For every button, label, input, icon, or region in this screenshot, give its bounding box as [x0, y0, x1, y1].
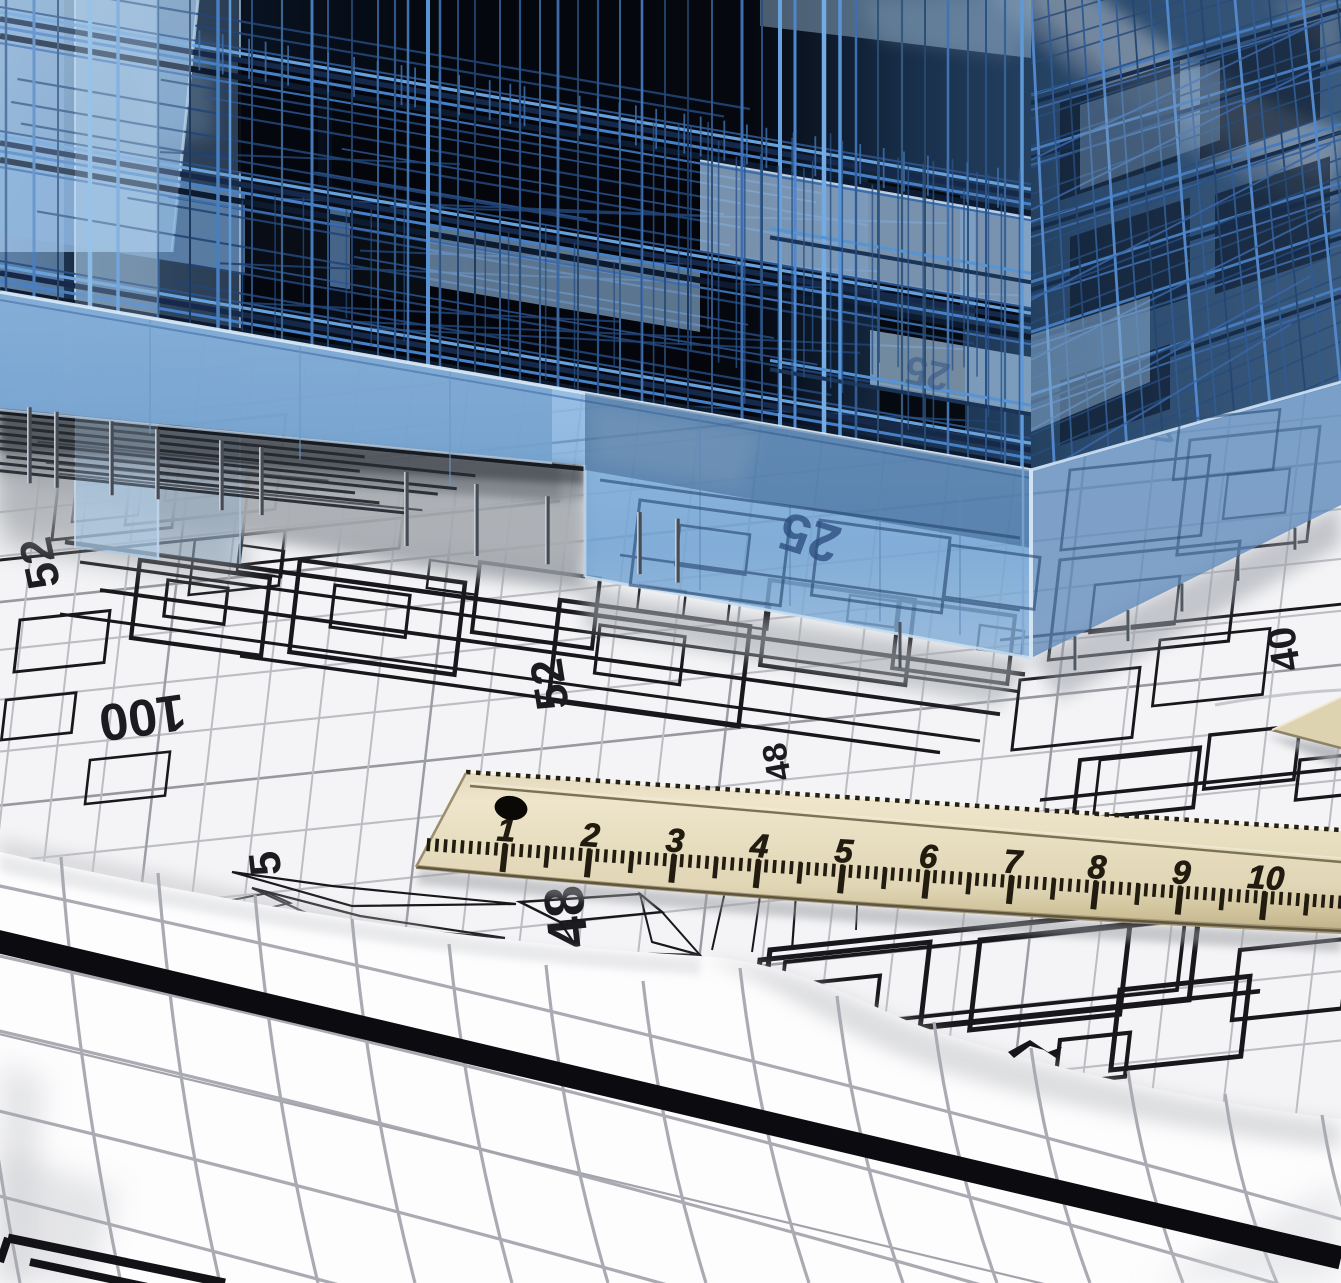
svg-text:40: 40 — [1259, 624, 1309, 675]
svg-text:2: 2 — [579, 816, 602, 854]
svg-text:52: 52 — [520, 655, 579, 714]
svg-text:10: 10 — [1246, 858, 1286, 898]
svg-text:4: 4 — [748, 826, 770, 864]
svg-text:48: 48 — [755, 740, 799, 784]
svg-text:9: 9 — [1171, 853, 1193, 891]
svg-text:3: 3 — [665, 821, 686, 859]
svg-text:25: 25 — [901, 347, 954, 399]
svg-text:100: 100 — [95, 682, 189, 752]
svg-text:8: 8 — [1087, 848, 1109, 886]
svg-text:6: 6 — [918, 837, 940, 875]
svg-text:5: 5 — [833, 832, 855, 870]
